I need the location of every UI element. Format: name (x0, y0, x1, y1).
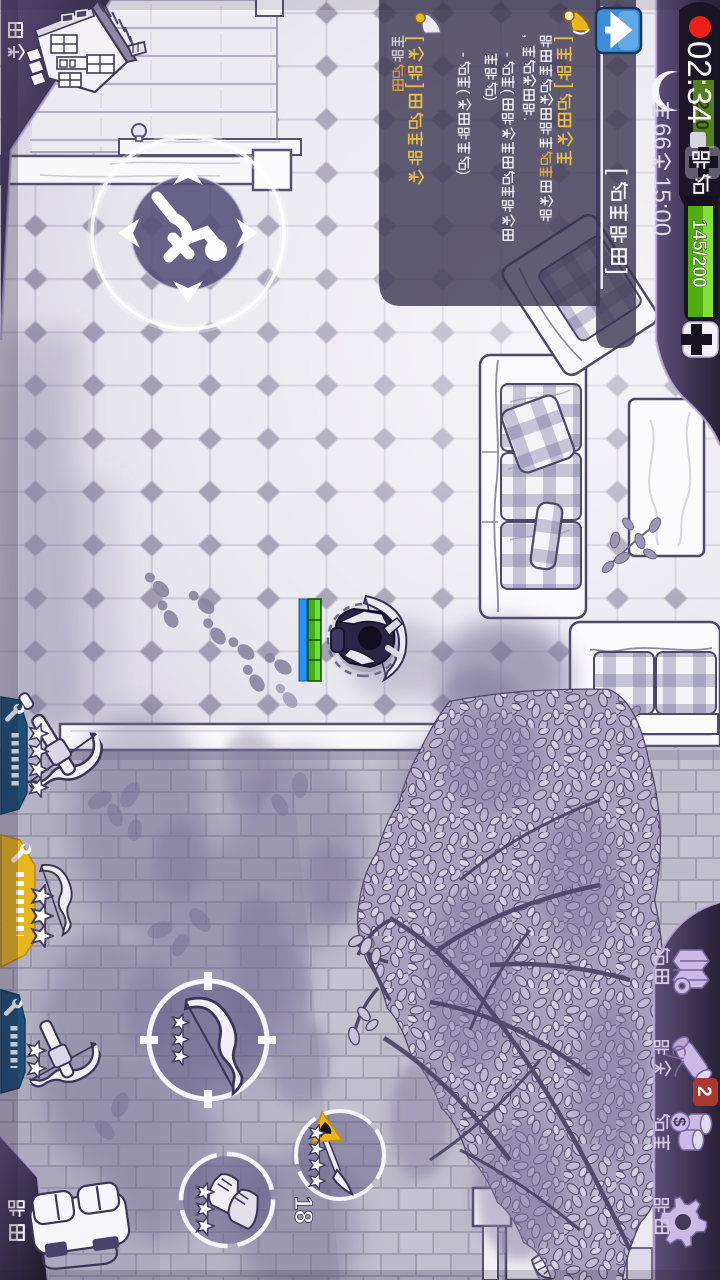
svg-text:]: ] (553, 83, 575, 89)
svg-text:): ) (455, 170, 472, 175)
svg-text:.: . (520, 117, 537, 121)
svg-text:(: ( (499, 89, 516, 94)
svg-text:]: ] (604, 268, 631, 275)
svg-text:[: [ (404, 36, 426, 42)
svg-text:66: 66 (648, 123, 675, 150)
svg-text:-: - (499, 52, 516, 57)
svg-text:15:00: 15:00 (648, 176, 675, 236)
svg-text:-: - (455, 52, 472, 57)
svg-text:$: $ (670, 1117, 689, 1127)
svg-text:18: 18 (289, 1196, 317, 1224)
svg-text:]: ] (404, 83, 426, 89)
svg-text:2: 2 (693, 1086, 714, 1097)
svg-text:): ) (482, 96, 499, 101)
svg-text:(: ( (455, 89, 472, 94)
svg-text:,: , (520, 34, 537, 38)
svg-text:[: [ (604, 168, 631, 175)
svg-text:[: [ (553, 36, 575, 42)
svg-text:145/200: 145/200 (688, 219, 709, 288)
svg-text:02:34: 02:34 (681, 41, 718, 124)
